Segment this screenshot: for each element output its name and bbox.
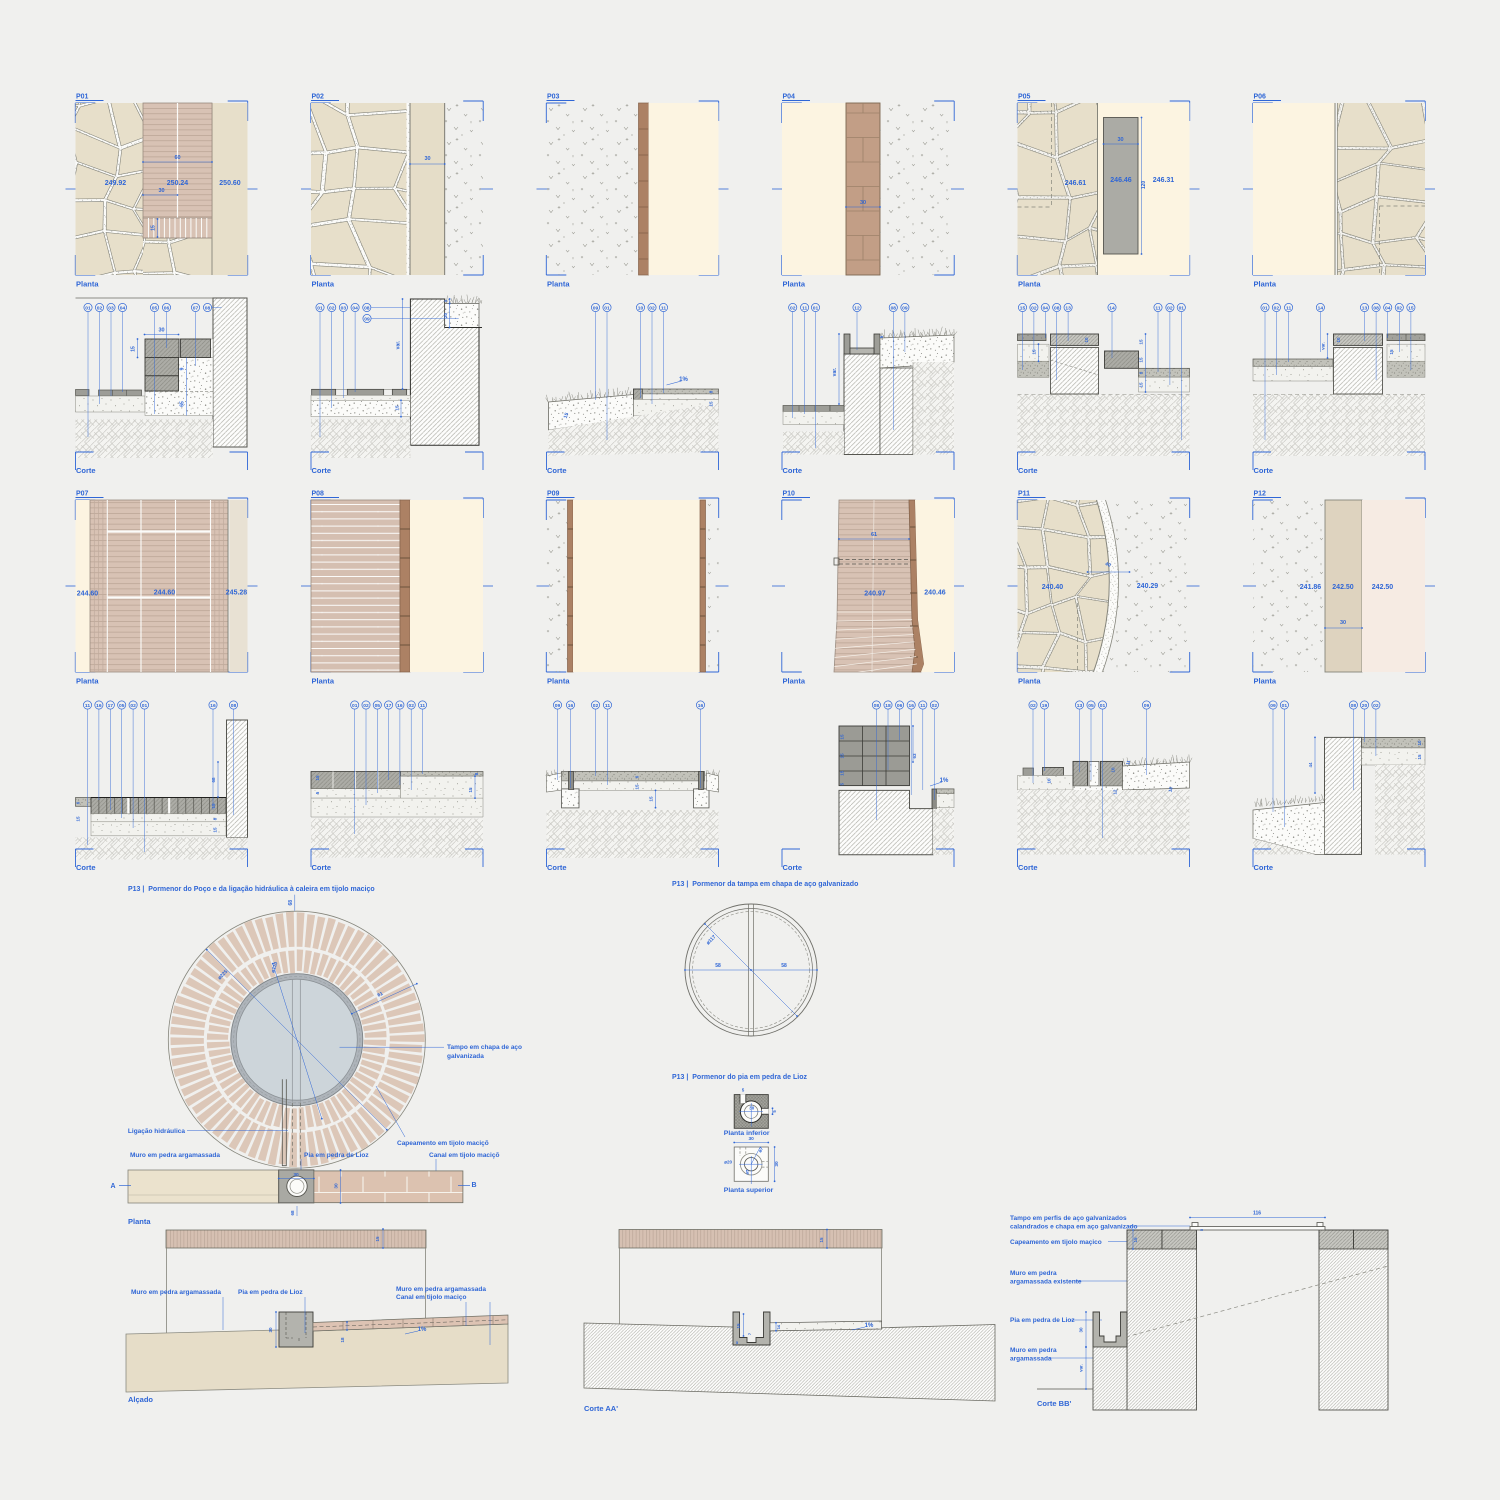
svg-text:246.31: 246.31 xyxy=(1153,177,1175,184)
svg-text:246.61: 246.61 xyxy=(1065,180,1087,187)
svg-text:08: 08 xyxy=(891,305,897,311)
svg-text:30: 30 xyxy=(158,188,164,194)
svg-text:Pia em pedra de Lioz: Pia em pedra de Lioz xyxy=(304,1152,369,1159)
svg-text:09: 09 xyxy=(555,703,561,709)
svg-text:Corte: Corte xyxy=(1254,466,1274,475)
svg-text:15: 15 xyxy=(76,816,81,822)
svg-text:Ligação hidráulica: Ligação hidráulica xyxy=(128,1128,185,1135)
svg-text:1%: 1% xyxy=(865,1323,874,1329)
svg-text:Capeamento em tijolo maciçõ: Capeamento em tijolo maciçõ xyxy=(397,1140,489,1147)
svg-text:15: 15 xyxy=(840,734,845,740)
svg-text:01: 01 xyxy=(142,703,148,709)
svg-text:16: 16 xyxy=(908,703,914,709)
svg-text:10: 10 xyxy=(638,305,644,311)
svg-text:11: 11 xyxy=(420,703,425,709)
svg-text:15: 15 xyxy=(1417,754,1422,760)
svg-text:02: 02 xyxy=(1274,305,1280,311)
svg-text:04: 04 xyxy=(120,305,126,311)
svg-text:⌀20: ⌀20 xyxy=(724,1160,732,1165)
svg-text:16: 16 xyxy=(698,703,704,709)
svg-text:30: 30 xyxy=(774,1161,780,1167)
svg-text:02: 02 xyxy=(593,703,599,709)
svg-text:Planta inferior: Planta inferior xyxy=(724,1130,770,1137)
svg-text:P12: P12 xyxy=(1254,491,1267,498)
svg-text:14: 14 xyxy=(1318,305,1324,311)
svg-text:Canal em tijolo maciçõ: Canal em tijolo maciçõ xyxy=(429,1152,499,1159)
svg-text:02: 02 xyxy=(130,703,136,709)
svg-text:05: 05 xyxy=(1088,703,1094,709)
svg-text:Planta: Planta xyxy=(783,280,806,289)
svg-text:13: 13 xyxy=(1362,305,1368,311)
svg-text:250.24: 250.24 xyxy=(167,180,189,187)
svg-text:1%: 1% xyxy=(679,377,688,383)
svg-text:Corte: Corte xyxy=(312,466,332,475)
svg-text:240.97: 240.97 xyxy=(864,591,886,598)
svg-text:01: 01 xyxy=(317,305,323,311)
svg-text:P07: P07 xyxy=(76,491,89,498)
svg-text:var.: var. xyxy=(1321,342,1326,350)
svg-text:12: 12 xyxy=(854,305,860,311)
svg-text:01: 01 xyxy=(813,305,819,311)
svg-text:10: 10 xyxy=(1111,767,1116,773)
svg-text:08: 08 xyxy=(1373,305,1379,311)
svg-text:P13 | Pormenor da tampa em ch: P13 | Pormenor da tampa em chapa de aço … xyxy=(672,881,858,888)
svg-text:15: 15 xyxy=(131,346,137,352)
svg-text:B: B xyxy=(471,1182,476,1189)
svg-text:15: 15 xyxy=(394,405,399,411)
svg-text:Planta: Planta xyxy=(1018,677,1041,686)
svg-text:15: 15 xyxy=(840,770,845,776)
svg-text:01: 01 xyxy=(604,305,610,311)
svg-text:Corte: Corte xyxy=(783,863,803,872)
svg-text:9: 9 xyxy=(180,367,186,370)
svg-text:09: 09 xyxy=(1270,703,1276,709)
svg-text:Planta: Planta xyxy=(128,1217,151,1226)
svg-text:30: 30 xyxy=(1340,620,1346,626)
svg-text:01: 01 xyxy=(1282,703,1288,709)
svg-text:15: 15 xyxy=(151,225,157,231)
svg-text:var.: var. xyxy=(832,367,838,376)
svg-text:⌀5: ⌀5 xyxy=(745,1169,750,1174)
svg-text:Muro em pedra argamassada: Muro em pedra argamassada xyxy=(396,1286,486,1293)
svg-text:242.50: 242.50 xyxy=(1332,584,1354,591)
svg-text:249.92: 249.92 xyxy=(105,180,127,187)
svg-text:01: 01 xyxy=(85,305,91,311)
svg-text:30: 30 xyxy=(749,1105,755,1110)
svg-text:P01: P01 xyxy=(76,94,89,101)
svg-text:Planta: Planta xyxy=(312,677,335,686)
svg-text:20: 20 xyxy=(1362,703,1368,709)
svg-text:P10: P10 xyxy=(783,491,796,498)
svg-text:60: 60 xyxy=(174,155,180,161)
svg-text:10: 10 xyxy=(1047,778,1052,784)
svg-text:15: 15 xyxy=(315,775,320,781)
svg-text:01: 01 xyxy=(1179,305,1185,311)
svg-text:01: 01 xyxy=(352,703,358,709)
svg-text:Planta superior: Planta superior xyxy=(724,1187,774,1194)
svg-text:04: 04 xyxy=(352,305,358,311)
svg-text:246.46: 246.46 xyxy=(1110,177,1132,184)
svg-text:05: 05 xyxy=(152,305,158,311)
svg-text:02: 02 xyxy=(1167,305,1173,311)
svg-text:10: 10 xyxy=(1417,740,1422,746)
svg-text:30: 30 xyxy=(424,156,430,162)
svg-text:Corte: Corte xyxy=(76,863,96,872)
svg-text:Muro em pedra argamassada: Muro em pedra argamassada xyxy=(130,1152,220,1159)
svg-text:08: 08 xyxy=(1351,703,1357,709)
svg-text:Corte BB': Corte BB' xyxy=(1037,1399,1072,1408)
svg-text:11: 11 xyxy=(605,703,610,709)
svg-text:P11: P11 xyxy=(1018,491,1030,498)
svg-text:15: 15 xyxy=(211,803,216,809)
svg-text:Muro em pedra argamassada: Muro em pedra argamassada xyxy=(131,1289,221,1296)
svg-text:15: 15 xyxy=(1139,339,1144,345)
svg-text:P02: P02 xyxy=(312,94,325,101)
svg-text:08: 08 xyxy=(231,703,237,709)
svg-text:02: 02 xyxy=(1373,703,1379,709)
svg-text:02: 02 xyxy=(1030,703,1036,709)
svg-text:30: 30 xyxy=(749,1136,755,1142)
svg-text:P13 | Pormenor do pia em pedr: P13 | Pormenor do pia em pedra de Lioz xyxy=(672,1074,807,1081)
svg-text:02: 02 xyxy=(649,305,655,311)
svg-text:Corte: Corte xyxy=(1254,863,1274,872)
svg-text:10: 10 xyxy=(1084,337,1089,343)
svg-text:Planta: Planta xyxy=(76,677,99,686)
svg-text:08: 08 xyxy=(364,305,370,311)
svg-text:30: 30 xyxy=(268,1327,273,1333)
svg-text:08: 08 xyxy=(874,703,880,709)
svg-text:11: 11 xyxy=(85,703,90,709)
svg-text:30: 30 xyxy=(293,1172,299,1178)
svg-text:15: 15 xyxy=(736,1323,741,1329)
svg-text:16: 16 xyxy=(776,1324,781,1329)
svg-text:17: 17 xyxy=(108,703,114,709)
svg-text:240.40: 240.40 xyxy=(1042,584,1064,591)
svg-text:Corte: Corte xyxy=(1018,466,1038,475)
svg-text:argamassada: argamassada xyxy=(1010,1356,1052,1363)
svg-text:var.: var. xyxy=(1079,1364,1084,1372)
svg-text:44: 44 xyxy=(1308,762,1313,768)
svg-text:04: 04 xyxy=(1385,305,1391,311)
svg-text:P13 | Pormenor do Poço e da l: P13 | Pormenor do Poço e da ligação hidr… xyxy=(128,886,375,893)
svg-text:04: 04 xyxy=(1043,305,1049,311)
svg-text:Tampo em chapa de aço: Tampo em chapa de aço xyxy=(447,1044,522,1051)
svg-text:Muro em pedra: Muro em pedra xyxy=(1010,1270,1057,1277)
svg-text:15: 15 xyxy=(635,784,640,790)
svg-text:30: 30 xyxy=(860,200,866,206)
svg-text:Muro em pedra: Muro em pedra xyxy=(1010,1347,1057,1354)
svg-text:19: 19 xyxy=(1042,703,1048,709)
svg-text:11: 11 xyxy=(661,305,666,311)
svg-text:03: 03 xyxy=(341,305,347,311)
svg-text:P08: P08 xyxy=(312,491,325,498)
svg-text:120: 120 xyxy=(1141,181,1147,190)
svg-text:08: 08 xyxy=(205,305,211,311)
svg-text:02: 02 xyxy=(408,703,414,709)
svg-text:Canal em tijolo maciço: Canal em tijolo maciço xyxy=(396,1294,466,1301)
svg-text:P06: P06 xyxy=(1254,94,1267,101)
svg-text:06: 06 xyxy=(897,703,903,709)
svg-text:Corte: Corte xyxy=(547,863,567,872)
svg-text:65: 65 xyxy=(180,401,186,407)
svg-text:var.: var. xyxy=(396,340,402,349)
svg-text:08: 08 xyxy=(1054,305,1060,311)
svg-text:1%: 1% xyxy=(418,1327,427,1333)
svg-text:1%: 1% xyxy=(940,778,949,784)
svg-text:15: 15 xyxy=(1139,382,1144,388)
svg-text:20: 20 xyxy=(443,313,448,319)
svg-text:10: 10 xyxy=(1336,337,1341,343)
svg-text:02: 02 xyxy=(363,703,369,709)
svg-text:15: 15 xyxy=(819,1237,824,1243)
svg-text:Pia em pedra de Lioz: Pia em pedra de Lioz xyxy=(238,1289,303,1296)
svg-text:A: A xyxy=(110,1183,115,1190)
svg-text:30: 30 xyxy=(158,328,164,334)
svg-text:15: 15 xyxy=(709,401,714,407)
svg-text:15: 15 xyxy=(1389,349,1394,355)
svg-text:15: 15 xyxy=(1020,305,1026,311)
svg-text:15: 15 xyxy=(1139,357,1144,363)
svg-text:07: 07 xyxy=(193,305,199,311)
svg-text:02: 02 xyxy=(790,305,796,311)
svg-text:16: 16 xyxy=(210,703,216,709)
svg-text:06: 06 xyxy=(164,305,170,311)
svg-text:15: 15 xyxy=(468,787,473,793)
svg-text:03: 03 xyxy=(108,305,114,311)
svg-text:68: 68 xyxy=(211,777,216,783)
svg-text:13: 13 xyxy=(1065,305,1071,311)
svg-text:250.60: 250.60 xyxy=(219,180,241,187)
svg-text:18: 18 xyxy=(340,1337,345,1343)
svg-text:Planta: Planta xyxy=(783,677,806,686)
svg-text:15: 15 xyxy=(840,753,845,759)
svg-text:Planta: Planta xyxy=(547,280,570,289)
svg-text:245.28: 245.28 xyxy=(226,590,248,597)
svg-text:14: 14 xyxy=(1109,305,1115,311)
svg-text:58: 58 xyxy=(715,963,721,969)
svg-text:30: 30 xyxy=(1079,1327,1084,1333)
svg-text:17: 17 xyxy=(386,703,392,709)
svg-text:09: 09 xyxy=(902,305,908,311)
svg-text:68: 68 xyxy=(288,900,294,906)
svg-text:02: 02 xyxy=(932,703,938,709)
svg-text:Corte: Corte xyxy=(1018,863,1038,872)
svg-text:P09: P09 xyxy=(547,491,560,498)
svg-text:244.60: 244.60 xyxy=(77,591,99,598)
svg-text:68: 68 xyxy=(290,1210,295,1216)
svg-text:16: 16 xyxy=(568,703,574,709)
svg-text:02: 02 xyxy=(97,305,103,311)
svg-text:240.46: 240.46 xyxy=(924,590,946,597)
svg-text:09: 09 xyxy=(593,305,599,311)
svg-text:P05: P05 xyxy=(1018,94,1031,101)
svg-text:Capeamento em tijolo maçico: Capeamento em tijolo maçico xyxy=(1010,1239,1102,1246)
svg-text:116: 116 xyxy=(1253,1211,1261,1217)
svg-text:240.29: 240.29 xyxy=(1137,583,1159,590)
svg-text:09: 09 xyxy=(364,316,370,322)
svg-text:11: 11 xyxy=(1155,305,1160,311)
svg-text:11: 11 xyxy=(920,703,925,709)
svg-text:01: 01 xyxy=(1100,703,1106,709)
svg-text:15: 15 xyxy=(1133,1237,1138,1243)
svg-text:16: 16 xyxy=(96,703,102,709)
svg-text:01: 01 xyxy=(1262,305,1268,311)
svg-text:Corte AA': Corte AA' xyxy=(584,1404,618,1413)
svg-text:02: 02 xyxy=(329,305,335,311)
svg-text:calandrados e chapa em aço gal: calandrados e chapa em aço galvanizado xyxy=(1010,1224,1138,1231)
svg-text:Planta: Planta xyxy=(547,677,570,686)
svg-text:Pia em pedra de Lioz: Pia em pedra de Lioz xyxy=(1010,1317,1075,1324)
svg-text:Tampo em perfis de aço galvani: Tampo em perfis de aço galvanizados xyxy=(1010,1215,1127,1222)
svg-text:Corte: Corte xyxy=(783,466,803,475)
svg-text:30: 30 xyxy=(1117,137,1123,143)
svg-text:P04: P04 xyxy=(783,94,796,101)
svg-text:galvanizada: galvanizada xyxy=(447,1053,484,1060)
svg-text:58: 58 xyxy=(781,963,787,969)
svg-text:30: 30 xyxy=(334,1183,340,1189)
svg-text:Corte: Corte xyxy=(547,466,567,475)
svg-text:18: 18 xyxy=(885,703,891,709)
svg-text:61: 61 xyxy=(871,532,877,538)
svg-text:13: 13 xyxy=(1077,703,1083,709)
svg-text:15: 15 xyxy=(375,1236,380,1242)
svg-text:241.86: 241.86 xyxy=(1300,584,1322,591)
svg-text:Alçado: Alçado xyxy=(128,1395,153,1404)
svg-text:12: 12 xyxy=(1113,789,1118,795)
svg-text:16: 16 xyxy=(397,703,403,709)
svg-text:244.60: 244.60 xyxy=(154,590,176,597)
svg-text:Planta: Planta xyxy=(312,280,335,289)
svg-text:63: 63 xyxy=(912,753,917,759)
svg-text:02: 02 xyxy=(1031,305,1037,311)
svg-text:15: 15 xyxy=(1408,305,1414,311)
svg-text:02: 02 xyxy=(1397,305,1403,311)
svg-text:11: 11 xyxy=(802,305,807,311)
svg-text:Corte: Corte xyxy=(312,863,332,872)
svg-text:15: 15 xyxy=(649,796,654,802)
svg-text:Planta: Planta xyxy=(76,280,99,289)
svg-text:Planta: Planta xyxy=(1254,280,1277,289)
svg-text:argamassada existente: argamassada existente xyxy=(1010,1279,1082,1286)
svg-text:Planta: Planta xyxy=(1254,677,1277,686)
svg-text:05: 05 xyxy=(375,703,381,709)
svg-text:11: 11 xyxy=(1286,305,1291,311)
svg-text:242.50: 242.50 xyxy=(1372,584,1394,591)
svg-text:15: 15 xyxy=(213,827,218,833)
svg-text:09: 09 xyxy=(1144,703,1150,709)
svg-text:05: 05 xyxy=(119,703,125,709)
svg-text:15: 15 xyxy=(1032,349,1037,355)
svg-text:Corte: Corte xyxy=(76,466,96,475)
svg-text:P03: P03 xyxy=(547,94,560,101)
svg-text:Planta: Planta xyxy=(1018,280,1041,289)
